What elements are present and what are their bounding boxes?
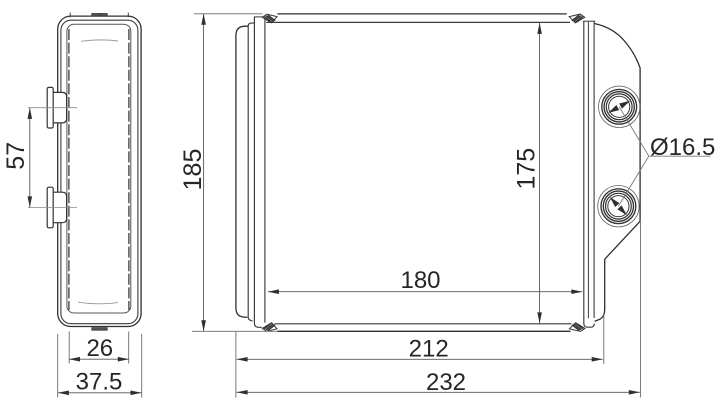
svg-text:Ø16.5: Ø16.5 — [650, 134, 715, 161]
svg-text:37.5: 37.5 — [76, 368, 123, 395]
svg-text:212: 212 — [409, 335, 449, 362]
svg-text:232: 232 — [426, 369, 466, 396]
svg-text:185: 185 — [179, 149, 207, 191]
svg-text:26: 26 — [86, 335, 113, 362]
svg-text:57: 57 — [2, 142, 30, 170]
svg-text:175: 175 — [513, 148, 541, 190]
svg-text:180: 180 — [400, 267, 440, 294]
